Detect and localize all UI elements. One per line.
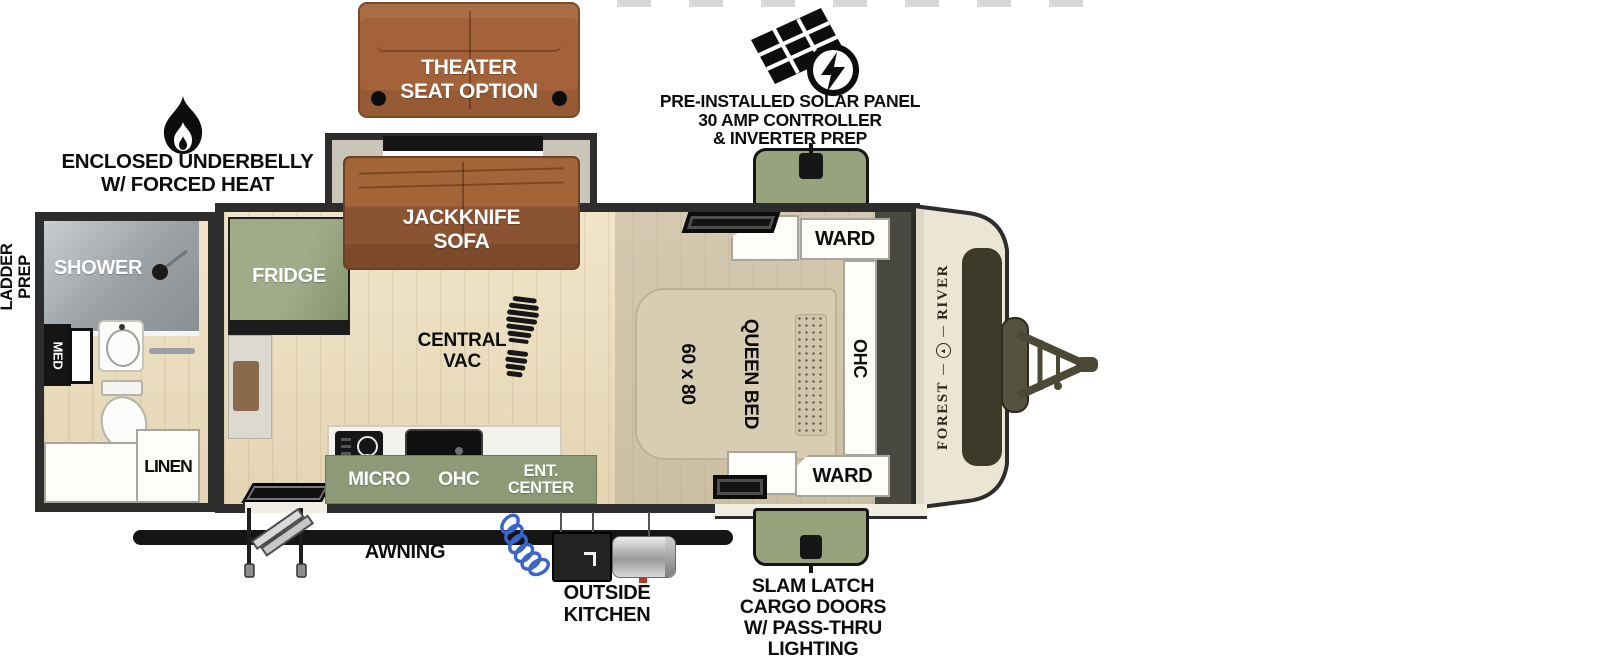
shower: SHOWER (44, 221, 199, 336)
hitch-a-frame (1000, 310, 1100, 420)
fridge-base (230, 320, 348, 333)
cargo-doors-line4: LIGHTING (723, 639, 903, 660)
theater-seat-label-line1: THEATER (360, 56, 578, 80)
decal-dash: — (937, 364, 949, 375)
wardrobe-bottom: WARD (795, 455, 890, 497)
ladder-prep-line2: PREP (16, 217, 34, 337)
outside-kitchen-callout: OUTSIDE KITCHEN (545, 582, 669, 626)
mount-post (560, 512, 562, 534)
underbelly-callout-line1: ENCLOSED UNDERBELLY (35, 150, 340, 173)
slideout-window (383, 136, 543, 151)
linen-cabinet: LINEN (136, 429, 200, 503)
shower-label: SHOWER (54, 257, 142, 280)
cargo-door-top (753, 148, 869, 206)
sofa-label-line1: JACKKNIFE (345, 206, 578, 230)
outside-faucet-icon (593, 552, 596, 566)
cargo-doors-line2: CARGO DOORS (723, 597, 903, 618)
footprint-icon (500, 295, 540, 381)
solar-callout-line3: & INVERTER PREP (640, 129, 940, 148)
solar-panel-icon (733, 0, 868, 100)
front-cap-window (962, 248, 1002, 466)
counter-board (233, 361, 259, 411)
wardrobe-top: WARD (800, 218, 890, 260)
cargo-door-latch-icon (800, 535, 822, 559)
outside-kitchen-line1: OUTSIDE (545, 582, 669, 604)
med-cabinet-label: MED (50, 341, 65, 369)
cargo-doors-line3: W/ PASS-THRU (723, 618, 903, 639)
theater-seat-option: THEATER SEAT OPTION (358, 2, 580, 118)
towel-bar (149, 348, 195, 354)
tank-end-cap (665, 537, 675, 577)
kitchen-ohc-label: OHC (438, 469, 479, 491)
wardrobe-top-label: WARD (815, 228, 875, 251)
cargo-door-latch-icon (799, 153, 823, 179)
solar-callout-line2: 30 AMP CONTROLLER (640, 111, 940, 130)
entry-step-well (241, 483, 333, 503)
outside-kitchen-tank (612, 536, 676, 578)
ladder-prep-line1: LADDER (0, 217, 16, 337)
forest-river-decal: FOREST — ▲ — RIVER (934, 232, 952, 482)
theater-seat-label-line2: SEAT OPTION (360, 80, 578, 104)
jackknife-sofa: JACKKNIFE SOFA (343, 156, 580, 270)
linen-cabinet-left (44, 442, 138, 503)
kitchen-faucet-icon (455, 447, 463, 455)
brand-word-forest: FOREST (935, 381, 952, 450)
awning-label: AWNING (355, 541, 455, 564)
ent-center-label: ENT. CENTER (508, 463, 574, 497)
floorplan-scene: THEATER SEAT OPTION PRE-INSTALLED SOLAR … (0, 0, 1600, 672)
bathroom-sink (98, 320, 144, 372)
micro-label: MICRO (348, 469, 410, 491)
brand-word-river: RIVER (935, 264, 952, 320)
linen-label: LINEN (144, 456, 192, 477)
bathroom: SHOWER MED LINEN (35, 212, 217, 512)
mount-post (648, 512, 650, 536)
ent-center-line1: ENT. (508, 463, 574, 480)
entry-steps (235, 504, 335, 580)
mount-post (592, 512, 594, 534)
decal-dash: — (937, 326, 949, 337)
outside-kitchen-box (552, 532, 612, 582)
wardrobe-bottom-label: WARD (813, 465, 873, 488)
cargo-doors-line1: SLAM LATCH (723, 576, 903, 597)
med-cabinet-door (69, 328, 93, 384)
bedroom-ohc-label: OHC (850, 338, 871, 377)
fridge-label: FRIDGE (252, 265, 326, 288)
kitchen-banner: MICRO OHC ENT. CENTER (325, 455, 597, 504)
jackknife-sofa-label: JACKKNIFE SOFA (345, 206, 578, 253)
cargo-door-latch-stem (809, 143, 813, 153)
underbelly-callout-line2: W/ FORCED HEAT (35, 173, 340, 196)
forest-river-logo-icon: ▲ (936, 343, 951, 358)
roof-vent (682, 212, 781, 233)
theater-seat-back-cushion (376, 16, 562, 52)
ladder-prep-callout: LADDER PREP (0, 217, 36, 337)
cargo-door-bottom (753, 508, 869, 566)
solar-callout-line1: PRE-INSTALLED SOLAR PANEL (640, 92, 940, 111)
floor-vent (713, 475, 767, 499)
cargo-doors-callout: SLAM LATCH CARGO DOORS W/ PASS-THRU LIGH… (723, 576, 903, 660)
coiled-hose-icon (496, 510, 558, 580)
ent-center-line2: CENTER (508, 480, 574, 497)
queen-bed: 60 x 80 QUEEN BED (635, 288, 837, 460)
bed-pillow (795, 314, 827, 436)
outside-kitchen-line2: KITCHEN (545, 604, 669, 626)
bedroom-ohc: OHC (843, 260, 877, 456)
med-cabinet: MED (44, 324, 71, 386)
sink-basin (106, 329, 140, 367)
sofa-label-line2: SOFA (345, 230, 578, 254)
bed-size-label: 60 x 80 (676, 299, 698, 449)
cargo-door-latch-stem (809, 563, 813, 573)
theater-seat-label: THEATER SEAT OPTION (360, 56, 578, 103)
bed-label: QUEEN BED (739, 299, 761, 449)
solar-callout: PRE-INSTALLED SOLAR PANEL 30 AMP CONTROL… (640, 92, 940, 148)
forced-heat-flame-icon (158, 96, 208, 156)
toilet-tank (101, 380, 143, 396)
sink-faucet-icon (119, 324, 125, 330)
shower-head-icon (149, 249, 191, 285)
underbelly-callout: ENCLOSED UNDERBELLY W/ FORCED HEAT (35, 150, 340, 196)
fridge: FRIDGE (228, 217, 350, 335)
